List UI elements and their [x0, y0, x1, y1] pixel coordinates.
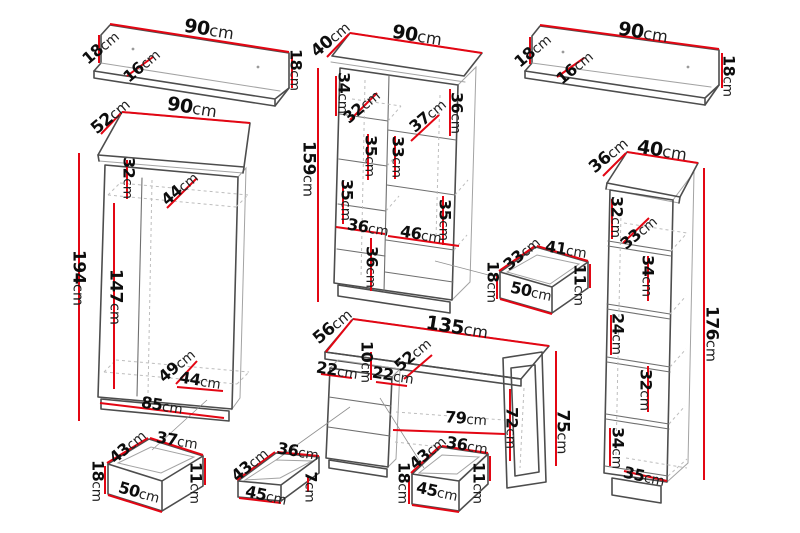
piece-tall-cabinet-center — [318, 33, 500, 313]
piece-wall-shelf-left — [94, 24, 292, 106]
piece-bookcase-right — [603, 152, 704, 503]
piece-wardrobe-left — [79, 112, 250, 450]
piece-wall-shelf-right — [525, 25, 722, 105]
piece-drawer-shallow-center — [237, 452, 319, 503]
piece-drawer-center — [409, 446, 490, 512]
furniture-set-dimension-diagram: 90cm18cm16cm18cm40cm90cm159cm34cm32cm36c… — [0, 0, 800, 533]
diagram-linework — [0, 0, 800, 533]
piece-desk — [276, 319, 556, 488]
piece-drawer-right — [497, 246, 590, 314]
piece-drawer-under-wardrobe — [105, 438, 205, 512]
